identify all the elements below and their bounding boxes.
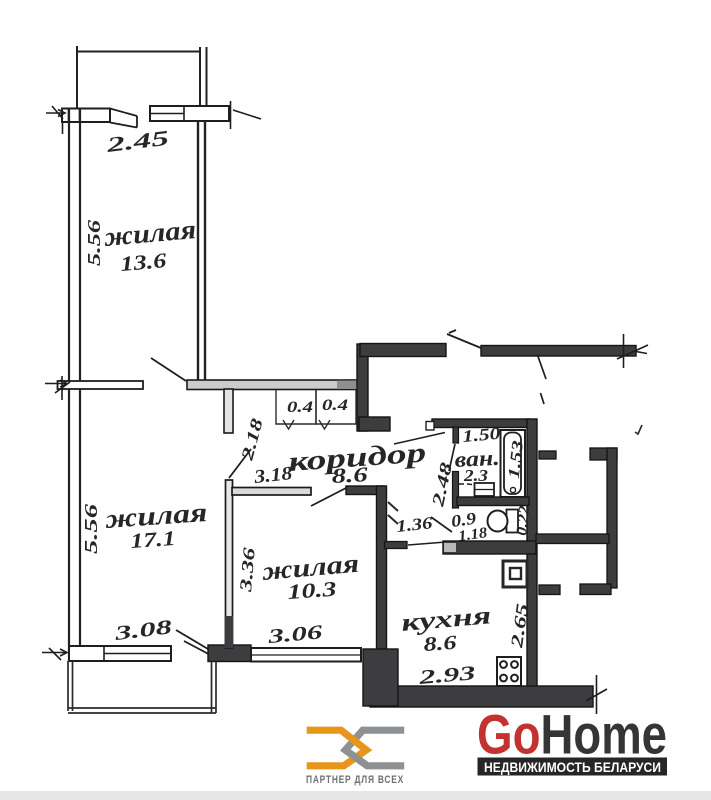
svg-text:Home: Home [541,703,668,766]
svg-text:17.1: 17.1 [130,526,177,553]
svg-text:0.4: 0.4 [322,397,348,414]
svg-text:5.56: 5.56 [84,220,104,266]
svg-text:3.36: 3.36 [236,546,259,594]
svg-text:8.6: 8.6 [331,462,369,488]
svg-text:1.50: 1.50 [462,424,502,446]
svg-text:8.6: 8.6 [423,632,457,656]
svg-text:ПАРТНЕР ДЛЯ ВСЕХ: ПАРТНЕР ДЛЯ ВСЕХ [306,774,404,786]
svg-text:10.3: 10.3 [287,577,338,604]
svg-text:5.56: 5.56 [81,504,101,554]
svg-text:1.36: 1.36 [395,513,433,536]
svg-text:Go: Go [477,703,541,766]
svg-text:3.18: 3.18 [252,463,294,488]
svg-text:0.4: 0.4 [287,399,313,416]
svg-text:13.6: 13.6 [119,248,168,276]
svg-text:НЕДВИЖИМОСТЬ БЕЛАРУСИ: НЕДВИЖИМОСТЬ БЕЛАРУСИ [484,760,661,775]
svg-text:0.22: 0.22 [514,504,533,536]
